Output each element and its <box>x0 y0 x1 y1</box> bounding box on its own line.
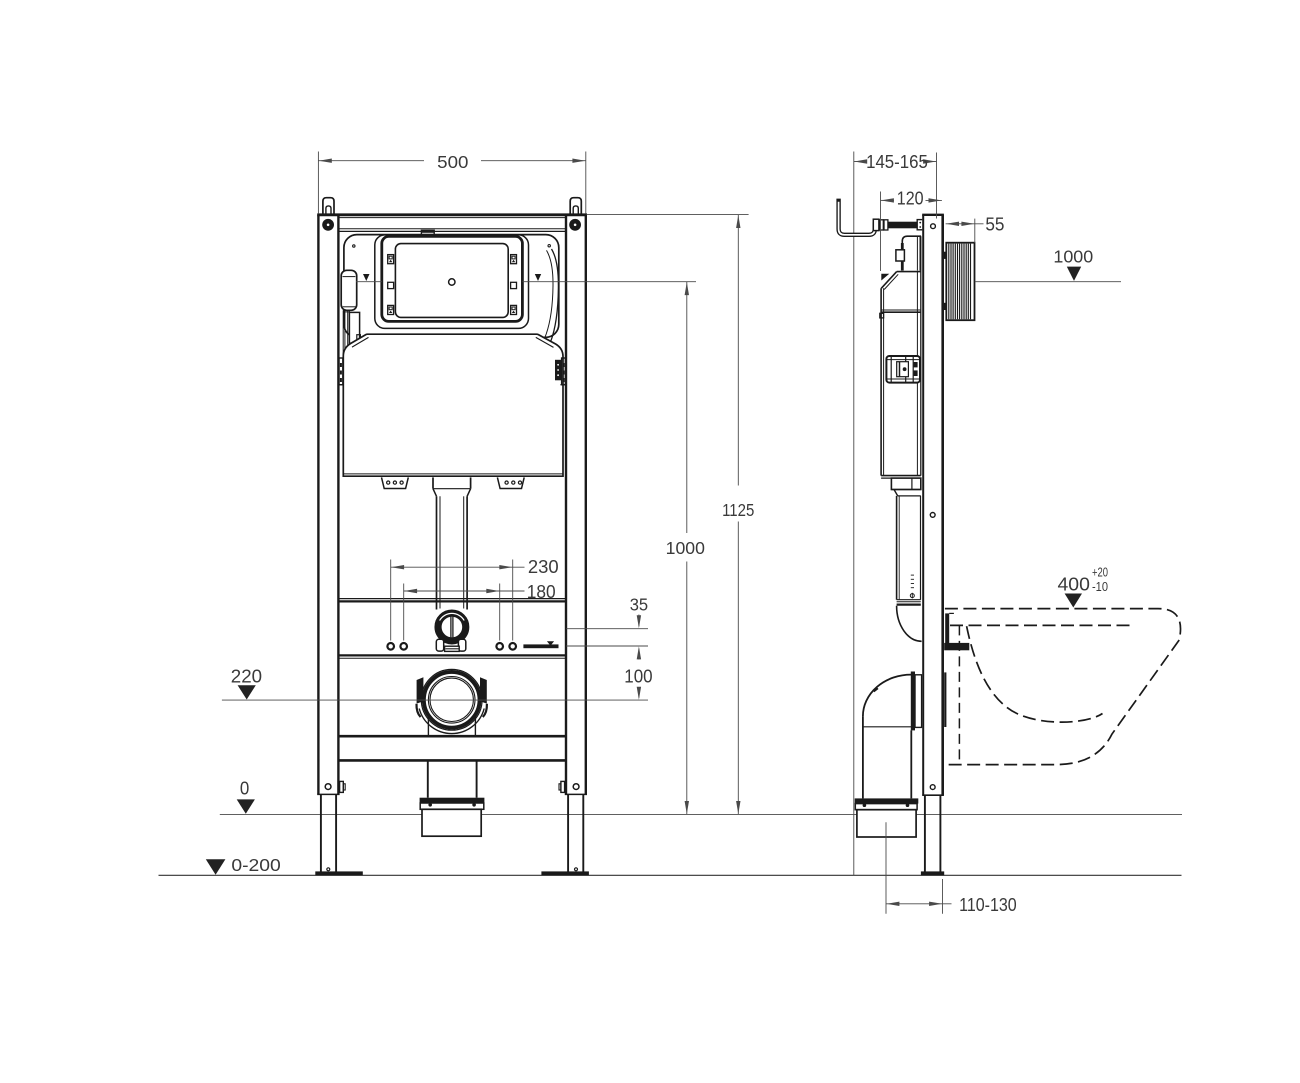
svg-text:1125: 1125 <box>722 500 754 520</box>
svg-text:230: 230 <box>528 556 559 577</box>
svg-text:500: 500 <box>437 152 468 172</box>
svg-text:145-165: 145-165 <box>866 151 928 172</box>
svg-text:-10: -10 <box>1092 579 1108 594</box>
svg-text:180: 180 <box>527 581 556 602</box>
svg-text:55: 55 <box>985 213 1004 234</box>
svg-text:110-130: 110-130 <box>959 894 1017 915</box>
svg-text:220: 220 <box>231 667 262 687</box>
svg-text:120: 120 <box>897 189 924 209</box>
svg-text:100: 100 <box>624 666 652 687</box>
svg-text:1000: 1000 <box>666 538 705 558</box>
svg-text:400: 400 <box>1058 573 1090 594</box>
svg-text:0-200: 0-200 <box>231 855 281 875</box>
svg-text:+20: +20 <box>1092 565 1108 580</box>
svg-text:35: 35 <box>630 595 649 615</box>
svg-text:0: 0 <box>240 779 249 799</box>
svg-text:1000: 1000 <box>1053 246 1093 266</box>
